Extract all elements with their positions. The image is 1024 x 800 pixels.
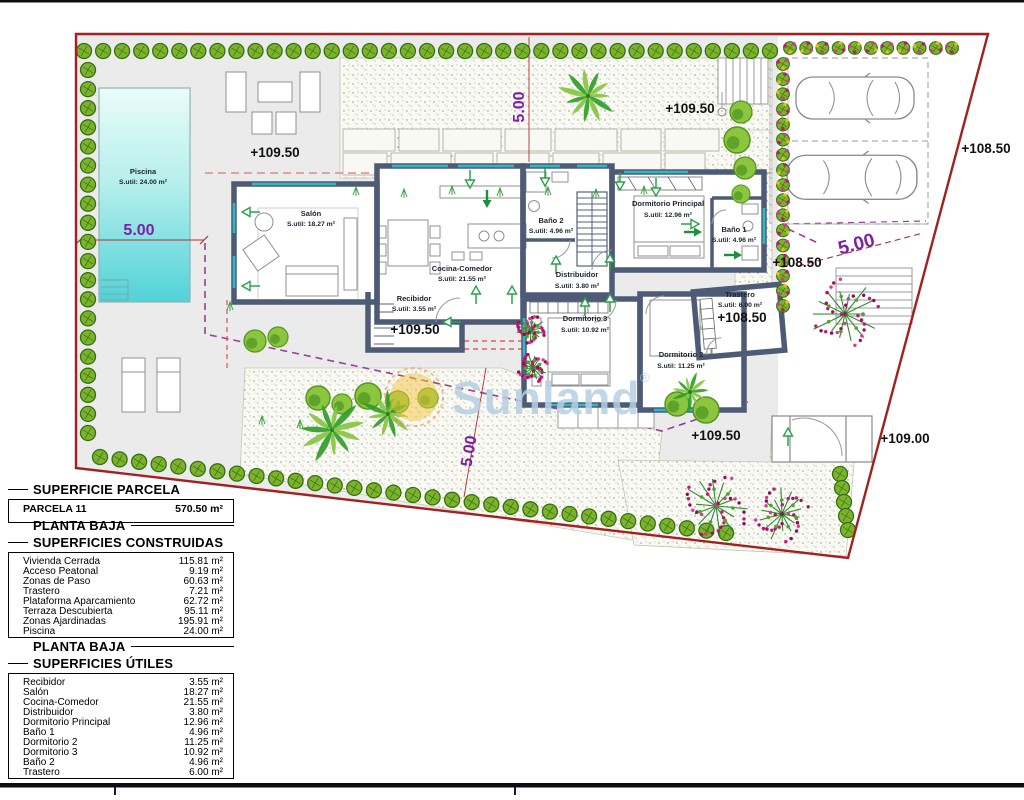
- watermark-text: Sunland: [452, 372, 640, 424]
- sheet-bottom-line: [0, 783, 1024, 788]
- sheet-top-line: [0, 0, 1024, 3]
- table-title: SUPERFICIES ÚTILES: [8, 656, 234, 671]
- room-area-label: S.util: 10.92 m²: [561, 327, 610, 334]
- room-area-label: S.util: 3.55 m²: [392, 306, 437, 313]
- room-label: Dormitorio 2: [659, 350, 704, 359]
- table-row: Trastero6.00 m²: [9, 768, 233, 778]
- elevation-label: +109.00: [880, 431, 929, 446]
- entrance-gate: [772, 416, 872, 462]
- table-row: PARCELA 11 570.50 m²: [9, 504, 233, 514]
- table-superficies-construidas: PLANTA BAJA SUPERFICIES CONSTRUIDAS Vivi…: [8, 518, 234, 638]
- sheet-tick: [114, 787, 116, 795]
- table-title-text: SUPERFICIES CONSTRUIDAS: [33, 535, 223, 550]
- room-label: Baño 2: [538, 216, 563, 225]
- elevation-label: +109.50: [250, 145, 299, 160]
- room-area-label: S.util: 4.96 m²: [529, 228, 574, 235]
- car-icon: [787, 151, 917, 204]
- table-title: PLANTA BAJA: [8, 518, 234, 533]
- room-label: Dormitorio Principal: [632, 199, 704, 208]
- table-box: Recibidor3.55 m² Salón18.27 m² Cocina-Co…: [8, 673, 234, 779]
- dimension-label: 5.00: [511, 91, 528, 122]
- sheet-tick: [514, 787, 516, 795]
- elevation-label: +108.50: [772, 255, 821, 270]
- elevation-label: +109.50: [665, 101, 714, 116]
- room-label: Cocina-Comedor: [432, 264, 493, 273]
- watermark-reg: ®: [640, 370, 650, 385]
- room-area-label: S.util: 18.27 m²: [287, 221, 336, 228]
- table-title-text: PLANTA BAJA: [33, 518, 125, 533]
- table-row: Piscina24.00 m²: [9, 627, 233, 637]
- room-label: Salón: [301, 209, 322, 218]
- title-tick: [8, 663, 28, 665]
- table-box: Vivienda Cerrada115.81 m² Acceso Peatona…: [8, 552, 234, 638]
- title-tick: [8, 542, 28, 544]
- room-label: Trastero: [725, 290, 755, 299]
- room-label: Recibidor: [397, 294, 432, 303]
- room-label: Piscina: [130, 167, 157, 176]
- table-title: SUPERFICIE PARCELA: [8, 482, 234, 497]
- elevation-label: +108.50: [717, 310, 766, 325]
- watermark: Sunland ®: [385, 368, 650, 426]
- interior-stairs: [577, 192, 607, 266]
- table-title: SUPERFICIES CONSTRUIDAS: [8, 535, 234, 550]
- table-title-text: SUPERFICIES ÚTILES: [33, 656, 173, 671]
- title-tick: [8, 489, 28, 491]
- car-icon: [796, 73, 914, 123]
- table-title-text: SUPERFICIE PARCELA: [33, 482, 180, 497]
- table-title-text: PLANTA BAJA: [33, 639, 125, 654]
- table-title: PLANTA BAJA: [8, 639, 234, 654]
- room-area-label: S.util: 21.55 m²: [438, 276, 487, 283]
- title-rule: [131, 646, 234, 648]
- table-superficies-utiles: PLANTA BAJA SUPERFICIES ÚTILES Recibidor…: [8, 639, 234, 779]
- room-area-label: S.util: 6.00 m²: [718, 302, 763, 309]
- sun-logo-icon: [390, 373, 438, 421]
- room-label: Distribuidor: [556, 270, 599, 279]
- elevation-label: +109.50: [691, 428, 740, 443]
- room-area-label: S.util: 3.80 m²: [555, 283, 600, 290]
- elevation-label: +108.50: [961, 141, 1010, 156]
- room-area-label: S.util: 12.96 m²: [644, 212, 693, 219]
- title-rule: [131, 525, 234, 527]
- swimming-pool: [99, 88, 190, 302]
- room-area-label: S.util: 24.00 m²: [119, 179, 168, 186]
- room-label: Baño 1: [721, 225, 746, 234]
- room-area-label: S.util: 4.96 m²: [712, 237, 757, 244]
- room-area-label: S.util: 11.25 m²: [657, 363, 705, 370]
- elevation-label: +109.50: [390, 322, 439, 337]
- dimension-label: 5.00: [123, 222, 154, 239]
- table-superficie-parcela: SUPERFICIE PARCELA PARCELA 11 570.50 m²: [8, 482, 234, 523]
- floor-plan-sheet: Sunland ® Piscina S.util: 24.00 m² Salón…: [0, 0, 1024, 800]
- room-label: Dormitorio 3: [563, 314, 608, 323]
